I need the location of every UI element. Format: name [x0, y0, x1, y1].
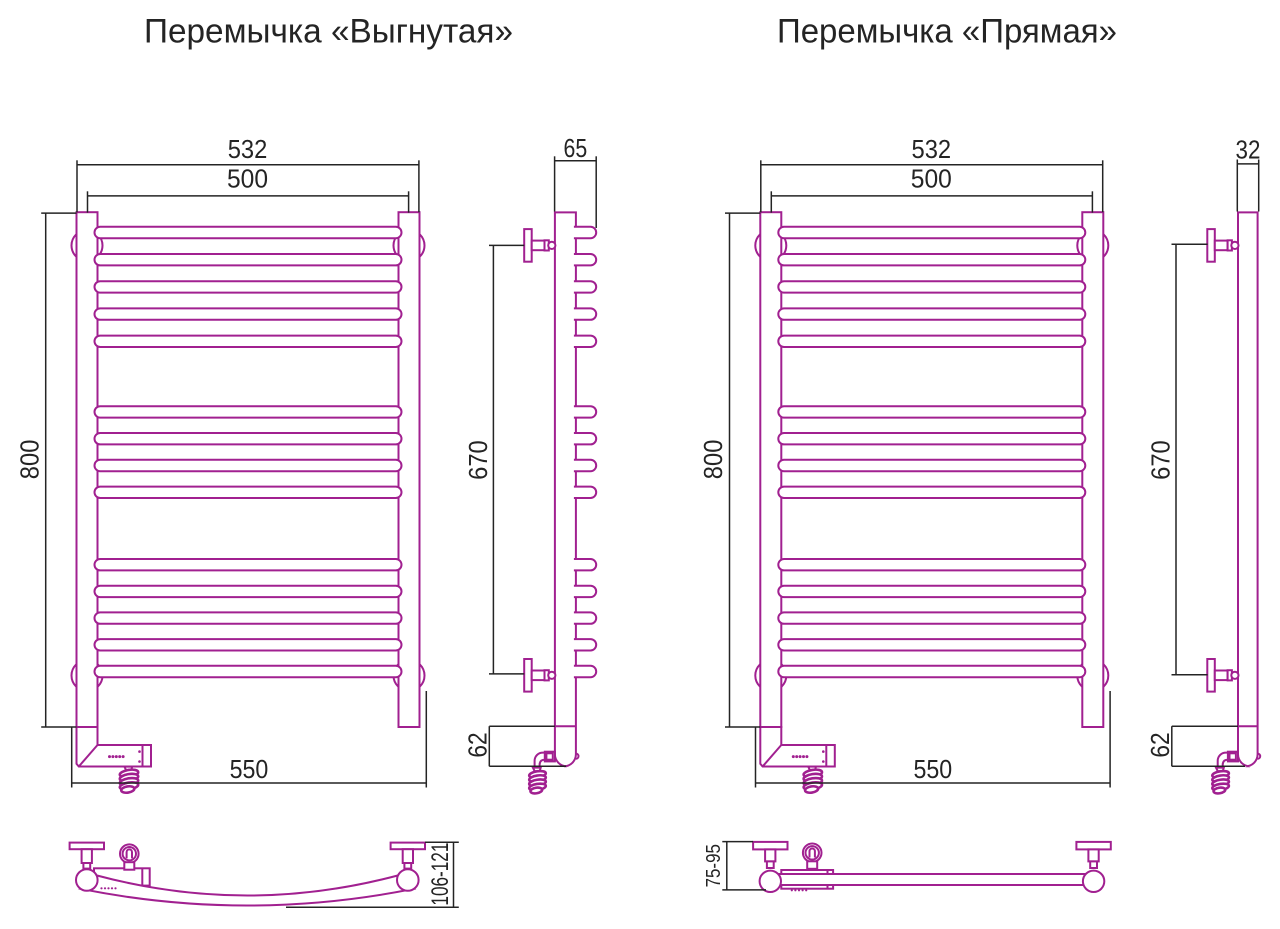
svg-text:800: 800	[698, 440, 728, 480]
svg-text:800: 800	[14, 440, 44, 480]
svg-text:670: 670	[463, 440, 493, 480]
svg-text:532: 532	[228, 134, 268, 164]
svg-text:550: 550	[913, 754, 952, 784]
svg-text:550: 550	[230, 754, 269, 784]
svg-text:62: 62	[462, 732, 492, 757]
svg-text:65: 65	[564, 133, 588, 163]
svg-text:532: 532	[912, 134, 952, 164]
svg-text:Перемычка «Прямая»: Перемычка «Прямая»	[777, 12, 1117, 50]
svg-text:62: 62	[1145, 732, 1175, 757]
svg-text:500: 500	[911, 163, 952, 193]
svg-text:32: 32	[1236, 134, 1261, 164]
svg-text:Перемычка «Выгнутая»: Перемычка «Выгнутая»	[144, 12, 513, 50]
svg-text:500: 500	[227, 163, 268, 193]
svg-text:106-121: 106-121	[427, 843, 454, 906]
svg-text:670: 670	[1146, 440, 1176, 480]
svg-text:75-95: 75-95	[703, 844, 725, 887]
